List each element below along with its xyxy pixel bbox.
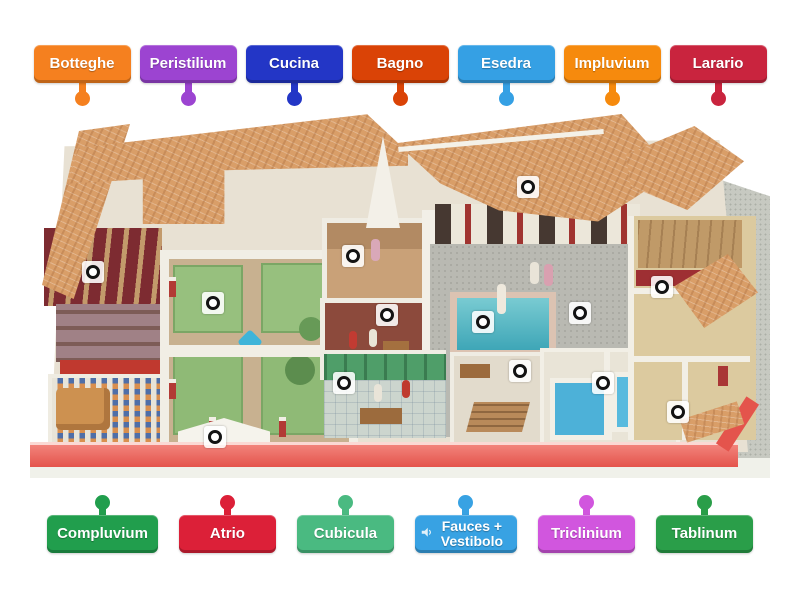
label-cucina[interactable]: Cucina	[246, 45, 343, 83]
label-tile-triclinium: Triclinium	[538, 495, 635, 553]
pin-circle-icon	[337, 376, 351, 390]
label-tile-cubicula: Cubicula	[297, 495, 394, 553]
label-bagno[interactable]: Bagno	[352, 45, 449, 83]
label-tile-impluvium: Impluvium	[564, 45, 661, 106]
pin-circle-icon	[206, 296, 220, 310]
pin-circle-icon	[476, 315, 490, 329]
pin-circle-icon	[671, 405, 685, 419]
label-tile-larario: Larario	[670, 45, 767, 106]
drop-zone-pin[interactable]	[667, 401, 689, 423]
pin-circle-icon	[380, 308, 394, 322]
drop-zone-pin[interactable]	[509, 360, 531, 382]
drop-zone-pin[interactable]	[333, 372, 355, 394]
label-dot	[697, 495, 712, 510]
label-dot	[393, 91, 408, 106]
drop-zone-pin[interactable]	[82, 261, 104, 283]
pin-circle-icon	[513, 364, 527, 378]
pins-layer	[30, 112, 770, 478]
label-dot	[95, 495, 110, 510]
drop-zone-pin[interactable]	[204, 426, 226, 448]
label-dot	[499, 91, 514, 106]
label-dot	[287, 91, 302, 106]
label-cubicula[interactable]: Cubicula	[297, 515, 394, 553]
label-larario[interactable]: Larario	[670, 45, 767, 83]
label-tile-compluvium: Compluvium	[47, 495, 158, 553]
label-esedra[interactable]: Esedra	[458, 45, 555, 83]
label-atrio[interactable]: Atrio	[179, 515, 276, 553]
pin-circle-icon	[346, 249, 360, 263]
drop-zone-pin[interactable]	[376, 304, 398, 326]
label-dot	[181, 91, 196, 106]
label-tile-tablinum: Tablinum	[656, 495, 753, 553]
drop-zone-pin[interactable]	[342, 245, 364, 267]
label-tile-atrio: Atrio	[179, 495, 276, 553]
label-dot	[458, 495, 473, 510]
pin-circle-icon	[86, 265, 100, 279]
label-tile-cucina: Cucina	[246, 45, 343, 106]
label-text: Fauces + Vestibolo	[435, 519, 509, 550]
pin-circle-icon	[655, 280, 669, 294]
drop-zone-pin[interactable]	[202, 292, 224, 314]
drop-zone-pin[interactable]	[472, 311, 494, 333]
label-tile-fauces-vestibolo: Fauces + Vestibolo	[415, 495, 517, 553]
drop-zone-pin[interactable]	[592, 372, 614, 394]
top-label-row: Botteghe Peristilium Cucina Bagno Esedra…	[0, 45, 800, 106]
label-botteghe[interactable]: Botteghe	[34, 45, 131, 83]
label-tile-esedra: Esedra	[458, 45, 555, 106]
label-dot	[220, 495, 235, 510]
label-peristilium[interactable]: Peristilium	[140, 45, 237, 83]
label-dot	[711, 91, 726, 106]
label-compluvium[interactable]: Compluvium	[47, 515, 158, 553]
label-tile-botteghe: Botteghe	[34, 45, 131, 106]
label-dot	[605, 91, 620, 106]
diagram-image	[30, 112, 770, 478]
pin-circle-icon	[521, 180, 535, 194]
label-dot	[579, 495, 594, 510]
pin-circle-icon	[596, 376, 610, 390]
speaker-icon	[421, 526, 433, 541]
label-tablinum[interactable]: Tablinum	[656, 515, 753, 553]
label-dot	[75, 91, 90, 106]
pin-circle-icon	[573, 306, 587, 320]
pin-circle-icon	[208, 430, 222, 444]
label-triclinium[interactable]: Triclinium	[538, 515, 635, 553]
label-impluvium[interactable]: Impluvium	[564, 45, 661, 83]
drop-zone-pin[interactable]	[517, 176, 539, 198]
bottom-label-row: Compluvium Atrio Cubicula Fauces + Vesti…	[0, 495, 800, 553]
drop-zone-pin[interactable]	[651, 276, 673, 298]
label-tile-bagno: Bagno	[352, 45, 449, 106]
label-dot	[338, 495, 353, 510]
label-tile-peristilium: Peristilium	[140, 45, 237, 106]
drop-zone-pin[interactable]	[569, 302, 591, 324]
label-fauces-vestibolo[interactable]: Fauces + Vestibolo	[415, 515, 517, 553]
